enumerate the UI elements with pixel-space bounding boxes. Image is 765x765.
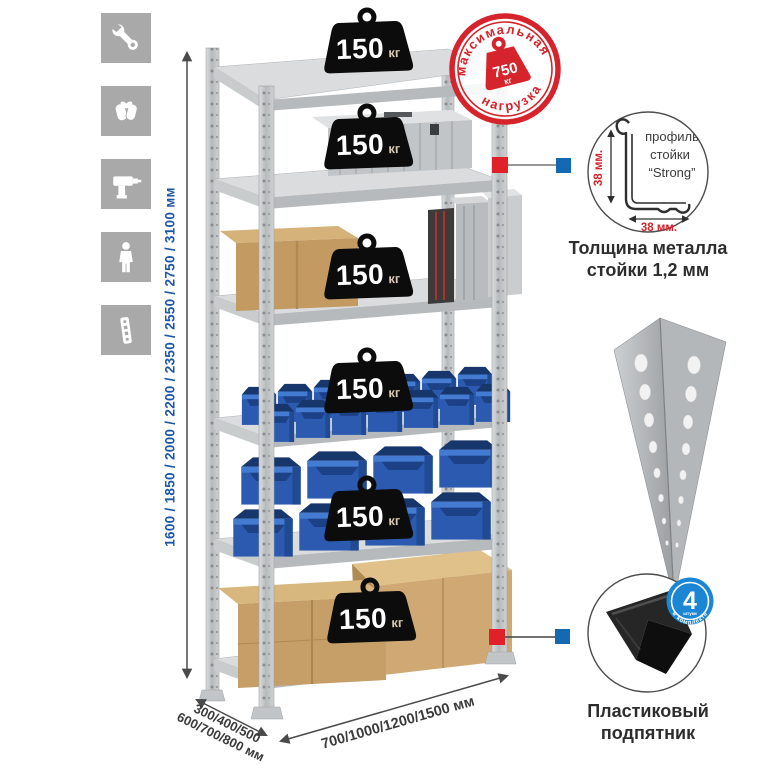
count-badge-sub: штуки xyxy=(683,611,697,616)
drill-icon xyxy=(101,159,151,209)
profile-detail-circle: 38 мм. 38 мм. профиль стойки “Strong” xyxy=(588,112,708,234)
foot-detail-circle: 4 штуки в комплекте xyxy=(588,574,714,692)
connector-bottom xyxy=(489,629,570,645)
foot-caption: Пластиковый подпятник xyxy=(543,700,753,744)
shelf-load-label: 150кг xyxy=(319,31,416,66)
shelf-load-label: 150кг xyxy=(319,257,416,292)
wrench-icon xyxy=(101,13,151,63)
upright-post-icon xyxy=(101,305,151,355)
profile-label-1: профиль xyxy=(645,129,699,144)
profile-dim-vertical: 38 мм. xyxy=(593,150,605,186)
marker-red-square xyxy=(489,629,505,645)
shelf-load-label: 150кг xyxy=(319,371,416,406)
shelf-load-label: 150кг xyxy=(319,499,416,534)
shelf-load-label: 150кг xyxy=(322,601,419,636)
profile-dim-horizontal: 38 мм. xyxy=(641,222,677,234)
shelf-load-label: 150кг xyxy=(319,127,416,162)
profile-caption-line2: стойки 1,2 мм xyxy=(543,259,753,281)
marker-red-square xyxy=(492,157,508,173)
person-icon xyxy=(101,232,151,282)
marker-blue-square xyxy=(555,629,570,644)
profile-label-2: стойки xyxy=(650,147,690,162)
upright-post-photo xyxy=(614,318,726,600)
connector-top xyxy=(492,157,571,173)
gloves-icon xyxy=(101,86,151,136)
marker-blue-square xyxy=(556,158,571,173)
profile-caption-line1: Толщина металла xyxy=(543,237,753,259)
profile-caption: Толщина металла стойки 1,2 мм xyxy=(543,237,753,281)
foot-caption-line1: Пластиковый xyxy=(543,700,753,722)
foot-caption-line2: подпятник xyxy=(543,722,753,744)
profile-label-3: “Strong” xyxy=(649,165,696,180)
stamp-max-load: максимальная нагрузка 750 кг xyxy=(441,5,569,133)
